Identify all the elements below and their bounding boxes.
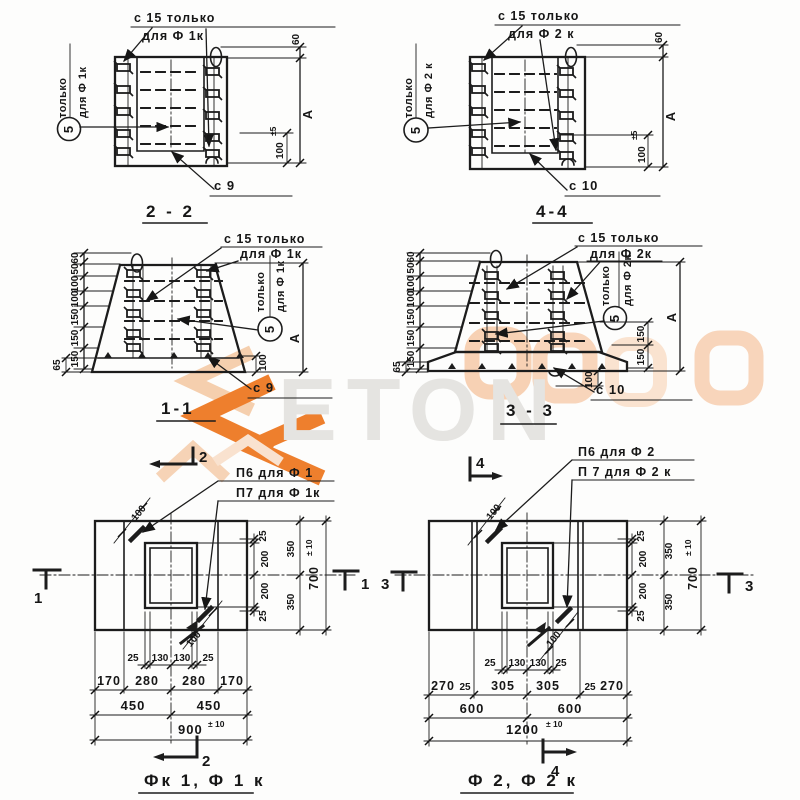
drawing-sheet: ETON <box>0 0 800 800</box>
rebar-mark: с 10 <box>569 178 598 193</box>
dim-label: 25 <box>127 653 139 664</box>
note-line2: для Ф 2 к <box>508 27 574 41</box>
cut-number: 2 <box>202 753 210 770</box>
dim-label: 130 <box>152 653 169 664</box>
dim-label: 170 <box>97 674 121 688</box>
cut-number: 2 <box>199 449 207 466</box>
dim-label: 100 <box>258 354 269 371</box>
dim-tolerance: ±5 <box>629 130 639 140</box>
callout-number: 5 <box>607 314 622 322</box>
dim-label: 60 <box>291 33 302 45</box>
drawing-linework: с 15 только для Ф 1к только для Ф 1к 5 6… <box>0 0 800 800</box>
cut-number: 4 <box>476 455 485 472</box>
dim-label: 25 <box>484 658 496 669</box>
section-cut-marker-bottom: 2 <box>153 737 210 770</box>
dim-total: 1200 <box>506 722 539 737</box>
plan-title: Фк 1, Ф 1 к <box>144 771 266 790</box>
side-note-line2: для Ф 2 к <box>423 63 435 118</box>
dim-label: 25 <box>555 658 567 669</box>
dim-label: 305 <box>536 679 560 693</box>
dim-label: 350 <box>286 540 297 557</box>
dim-label: 60 <box>70 252 81 264</box>
dim-label: 100 <box>185 629 204 649</box>
section-title: 3 - 3 <box>506 401 555 420</box>
dim-label: 350 <box>286 593 297 610</box>
linework <box>398 246 702 424</box>
rebar-mark: с 9 <box>253 380 274 395</box>
dim-tolerance: ± 10 <box>683 539 693 556</box>
note-line2: для Ф 1к <box>240 247 302 261</box>
dim-label: 450 <box>121 698 146 713</box>
callout-number: 5 <box>408 126 423 134</box>
dim-label: А <box>664 312 679 322</box>
dim-label: 25 <box>636 610 647 622</box>
dim-label: 100 <box>70 275 81 292</box>
dim-label: А <box>300 109 315 119</box>
plan-fk1-view: 2 2 1 1 П6 для Ф 1 П7 для Ф 1к 100 100 2… <box>34 448 369 793</box>
dim-label: 150 <box>636 325 647 342</box>
section-2-2-view: с 15 только для Ф 1к только для Ф 1к 5 6… <box>57 11 335 223</box>
dim-tolerance: ± 10 <box>546 719 563 729</box>
section-cut-marker-right: 1 <box>334 571 369 593</box>
note-line2: для Ф 2к <box>590 247 652 261</box>
section-cut-marker-top: 4 <box>470 455 503 480</box>
dim-label: 100 <box>275 142 286 159</box>
callout-number: 5 <box>262 325 277 333</box>
plan-title: Ф 2, Ф 2 к <box>468 771 578 790</box>
dim-label: 65 <box>52 359 63 371</box>
dim-label: 25 <box>636 530 647 542</box>
section-title: 1-1 <box>161 399 195 418</box>
dim-label: 350 <box>664 542 675 559</box>
cut-number: 3 <box>381 576 389 593</box>
side-note-line2: для Ф 1к <box>77 66 89 118</box>
section-cut-marker-right: 3 <box>718 574 753 595</box>
linework <box>70 27 335 223</box>
note-line1: с 15 только <box>578 231 659 245</box>
dim-total: 700 <box>307 566 321 590</box>
section-cut-marker-left: 1 <box>34 570 60 607</box>
side-note-line1: только <box>255 271 267 312</box>
dim-label: 200 <box>638 582 649 599</box>
dim-label: 25 <box>202 653 214 664</box>
dim-label: 25 <box>258 530 269 542</box>
linework <box>395 460 755 793</box>
dim-label: 25 <box>258 610 269 622</box>
dim-label: 600 <box>460 701 485 716</box>
dim-label: 100 <box>584 371 595 388</box>
dim-label: 50 <box>406 262 417 274</box>
dim-label: 170 <box>220 674 244 688</box>
dim-label: 50 <box>70 263 81 275</box>
section-3-3-view: с 15 только для Ф 2к 60 50 100 100 150 1… <box>392 231 702 424</box>
callout-number: 5 <box>61 125 76 133</box>
dim-label: 450 <box>197 698 222 713</box>
dim-label: 280 <box>182 674 206 688</box>
dim-label: 60 <box>406 251 417 263</box>
section-title: 2 - 2 <box>146 202 195 221</box>
dim-label: 130 <box>174 653 191 664</box>
dim-tolerance: ±5 <box>268 126 278 136</box>
plate-note-p6: П6 для Ф 1 <box>236 466 313 480</box>
dim-label: 100 <box>485 502 504 522</box>
dim-label: 305 <box>491 679 515 693</box>
dim-label: А <box>287 333 302 343</box>
dim-label: 130 <box>509 658 526 669</box>
section-4-4-view: с 15 только для Ф 2 к только для Ф 2 к 5… <box>403 9 680 223</box>
section-1-1-view: с 15 только для Ф 1к 60 50 100 100 150 1… <box>52 232 332 421</box>
dim-label: 150 <box>406 308 417 325</box>
dim-label: А <box>663 111 678 121</box>
dim-tolerance: ± 10 <box>304 539 314 556</box>
note-line1: с 15 только <box>498 9 579 23</box>
dim-label: 100 <box>70 290 81 307</box>
plate-note-p7: П7 для Ф 1к <box>236 486 320 500</box>
dim-label: 150 <box>406 329 417 346</box>
dim-total: 900 <box>178 722 203 737</box>
dim-label: 150 <box>70 329 81 346</box>
dim-label: 200 <box>638 550 649 567</box>
dim-label: 280 <box>135 674 159 688</box>
dim-label: 150 <box>636 348 647 365</box>
side-note-line1: только <box>57 77 69 118</box>
plan-f2-view: 4 4 3 3 П6 для Ф 2 П 7 для Ф 2 к 100 100… <box>381 445 755 793</box>
plate-note-p7: П 7 для Ф 2 к <box>578 465 671 479</box>
cut-number: 3 <box>745 578 753 595</box>
dim-tolerance: ± 10 <box>208 719 225 729</box>
dim-label: 150 <box>70 350 81 367</box>
dim-label: 100 <box>406 275 417 292</box>
side-note-line1: только <box>403 77 415 118</box>
dim-label: 65 <box>392 361 403 373</box>
dim-label: 270 <box>431 679 455 693</box>
anchor-symbol <box>534 622 546 634</box>
dim-label: 25 <box>459 682 471 693</box>
dim-label: 150 <box>70 308 81 325</box>
dim-label: 60 <box>654 31 665 43</box>
dim-total: 700 <box>686 566 700 590</box>
rebar-mark: с 10 <box>596 382 625 397</box>
dim-label: 100 <box>545 629 564 649</box>
dim-label: 600 <box>558 701 583 716</box>
linework <box>416 25 680 223</box>
cut-number: 1 <box>361 576 369 593</box>
dim-label: 100 <box>406 290 417 307</box>
side-note-line2: для Ф 1к <box>275 260 287 312</box>
rebar-mark: с 9 <box>214 178 235 193</box>
section-title: 4-4 <box>536 202 570 221</box>
note-line1: с 15 только <box>224 232 305 246</box>
dim-label: 350 <box>664 593 675 610</box>
dim-label: 130 <box>530 658 547 669</box>
section-cut-marker-top: 2 <box>149 448 207 468</box>
dim-label: 200 <box>260 550 271 567</box>
note-line1: с 15 только <box>134 11 215 25</box>
dim-label: 150 <box>406 350 417 367</box>
dim-label: 100 <box>637 146 648 163</box>
note-line2: для Ф 1к <box>142 29 204 43</box>
side-note-line2: для Ф 2к <box>622 254 634 306</box>
plate-note-p6: П6 для Ф 2 <box>578 445 655 459</box>
dim-label: 270 <box>600 679 624 693</box>
cut-number: 1 <box>34 590 42 607</box>
side-note-line1: только <box>600 265 612 306</box>
dim-label: 25 <box>584 682 596 693</box>
dim-label: 200 <box>260 582 271 599</box>
